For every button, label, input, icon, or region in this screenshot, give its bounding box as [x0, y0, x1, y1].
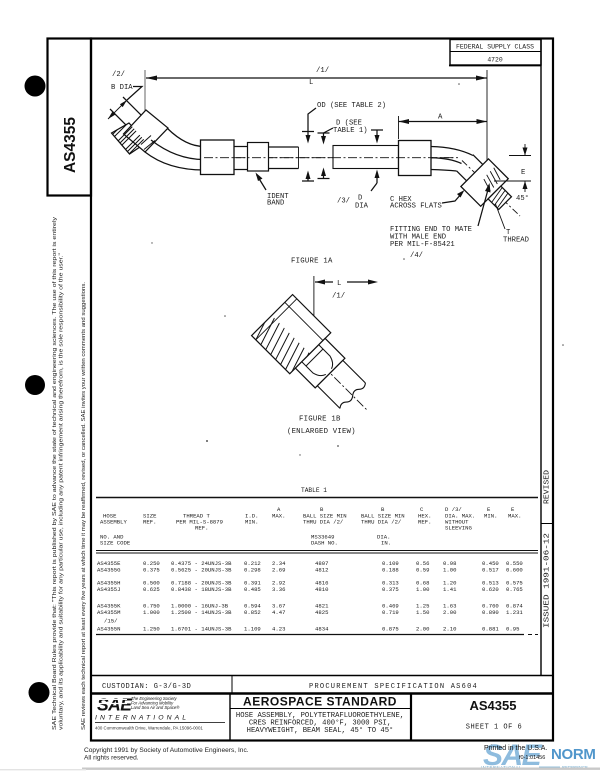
svg-text:FIGURE 1A: FIGURE 1A	[291, 258, 333, 266]
svg-text:THRU DIA /2/: THRU DIA /2/	[303, 519, 344, 526]
svg-text:2.69: 2.69	[272, 567, 285, 574]
svg-text:1.109: 1.109	[244, 626, 261, 633]
svg-text:0.375: 0.375	[382, 586, 399, 593]
svg-text:2.00: 2.00	[443, 609, 457, 616]
svg-text:/2/: /2/	[112, 71, 125, 79]
svg-text:INTERNATIONAL: INTERNATIONAL	[95, 715, 189, 722]
svg-text:AS4355N: AS4355N	[97, 626, 121, 633]
svg-text:REVISED: REVISED	[544, 469, 552, 504]
svg-text:(ENLARGED VIEW): (ENLARGED VIEW)	[287, 428, 356, 436]
svg-text:THRU DIA /2/: THRU DIA /2/	[361, 519, 402, 526]
svg-text:BAND: BAND	[267, 200, 284, 208]
svg-text:REF.: REF.	[143, 519, 156, 526]
svg-text:0.600: 0.600	[506, 567, 523, 574]
svg-text:0.188: 0.188	[382, 567, 399, 574]
svg-text:/15/: /15/	[104, 618, 118, 625]
svg-text:4.23: 4.23	[272, 626, 285, 633]
svg-text:AS4355G: AS4355G	[97, 567, 121, 574]
svg-text:0.881: 0.881	[482, 626, 499, 633]
svg-text:AS4355J: AS4355J	[97, 586, 121, 593]
svg-text:/3/: /3/	[337, 198, 350, 206]
svg-text:ISSUED 1991-06-12: ISSUED 1991-06-12	[544, 533, 552, 628]
svg-text:AS4355: AS4355	[62, 117, 79, 173]
svg-text:ASSEMBLY: ASSEMBLY	[100, 519, 127, 526]
svg-text:0.875: 0.875	[382, 626, 399, 633]
svg-text:THREAD: THREAD	[503, 237, 529, 245]
svg-text:0.8438 - 18UNJS-3B: 0.8438 - 18UNJS-3B	[171, 586, 232, 593]
svg-text:0.59: 0.59	[416, 567, 429, 574]
svg-text:MAX.: MAX.	[272, 513, 285, 520]
svg-text:1.250: 1.250	[143, 626, 160, 633]
svg-text:SAE reviews each technical rep: SAE reviews each technical report at lea…	[81, 282, 87, 730]
svg-text:1.6701 - 14UNJS-3B: 1.6701 - 14UNJS-3B	[171, 626, 232, 633]
svg-text:E: E	[521, 169, 525, 177]
svg-text:TABLE 1: TABLE 1	[301, 487, 327, 494]
svg-text:FIGURE 1B: FIGURE 1B	[299, 416, 341, 424]
svg-text:All rights reserved.: All rights reserved.	[84, 755, 139, 762]
svg-text:1.41: 1.41	[443, 586, 457, 593]
svg-text:D: D	[358, 195, 362, 203]
svg-text:/1/: /1/	[316, 67, 329, 75]
svg-text:A: A	[438, 114, 443, 122]
svg-text:Copyright 1991 by Society of A: Copyright 1991 by Society of Automotive …	[84, 747, 249, 754]
svg-text:HEAVYWEIGHT, BEAM SEAL, 45° TO: HEAVYWEIGHT, BEAM SEAL, 45° TO 45°	[247, 726, 394, 735]
svg-text:TABLE 1): TABLE 1)	[333, 127, 368, 135]
svg-text:2.00: 2.00	[416, 626, 430, 633]
svg-text:FEDERAL SUPPLY CLASS: FEDERAL SUPPLY CLASS	[456, 44, 534, 51]
svg-text:PROCUREMENT SPECIFICATION AS60: PROCUREMENT SPECIFICATION AS604	[309, 683, 478, 691]
svg-text:0.5625 - 20UNJS-3B: 0.5625 - 20UNJS-3B	[171, 567, 232, 574]
svg-text:0.765: 0.765	[506, 586, 523, 593]
svg-text:L: L	[309, 79, 313, 87]
svg-text:1.2500 - 14UNJS-3B: 1.2500 - 14UNJS-3B	[171, 609, 232, 616]
svg-text:0.298: 0.298	[244, 567, 261, 574]
svg-text:AEROSPACE STANDARD: AEROSPACE STANDARD	[243, 695, 397, 709]
svg-text:0.375: 0.375	[143, 567, 160, 574]
svg-text:AS4355M: AS4355M	[97, 609, 121, 616]
svg-text:0.719: 0.719	[382, 609, 399, 616]
svg-text:DIA: DIA	[355, 203, 369, 211]
svg-text:1.231: 1.231	[506, 609, 523, 616]
svg-text:L: L	[337, 280, 341, 288]
svg-text:SLEEVING: SLEEVING	[445, 525, 472, 532]
svg-text:3.36: 3.36	[272, 586, 285, 593]
svg-text:/4/: /4/	[410, 252, 423, 260]
svg-text:REF.: REF.	[195, 525, 208, 532]
svg-text:0.890: 0.890	[482, 609, 499, 616]
svg-text:MIN.: MIN.	[245, 519, 258, 526]
svg-text:4810: 4810	[315, 586, 329, 593]
svg-text:B DIA: B DIA	[111, 84, 133, 92]
svg-text:NORM: NORM	[551, 746, 596, 763]
svg-text:0.95: 0.95	[506, 626, 519, 633]
svg-text:0.852: 0.852	[244, 609, 261, 616]
svg-text:f0-1:01456: f0-1:01456	[519, 755, 545, 761]
svg-text:voluntary, and its applicabili: voluntary, and its applicability and sui…	[59, 253, 65, 730]
svg-text:DASH NO.: DASH NO.	[311, 540, 338, 547]
svg-text:AS4355: AS4355	[470, 698, 517, 713]
svg-text:/1/: /1/	[332, 293, 345, 301]
svg-text:IN.: IN.	[381, 540, 391, 547]
svg-text:4812: 4812	[315, 567, 328, 574]
svg-text:SAE Technical Board Rules prov: SAE Technical Board Rules provide that: …	[52, 217, 58, 730]
svg-text:0.517: 0.517	[482, 567, 499, 574]
svg-text:1.000: 1.000	[143, 609, 160, 616]
svg-text:0.620: 0.620	[482, 586, 499, 593]
svg-text:4720: 4720	[487, 57, 503, 64]
svg-text:MIN.: MIN.	[484, 513, 497, 520]
svg-text:MAX.: MAX.	[508, 513, 521, 520]
svg-text:1.00: 1.00	[416, 586, 430, 593]
svg-text:4825: 4825	[315, 609, 328, 616]
svg-text:1.50: 1.50	[416, 609, 430, 616]
svg-text:SIZE CODE: SIZE CODE	[100, 540, 131, 547]
svg-text:1.00: 1.00	[443, 567, 457, 574]
svg-text:0.485: 0.485	[244, 586, 261, 593]
svg-text:Land Sea Air and Space®: Land Sea Air and Space®	[131, 705, 180, 710]
svg-text:SHEET 1 OF 6: SHEET 1 OF 6	[466, 724, 522, 732]
svg-text:PER MIL-F-85421: PER MIL-F-85421	[390, 241, 455, 249]
svg-text:REF.: REF.	[418, 519, 431, 526]
svg-text:400 Commonwealth Drive, Warren: 400 Commonwealth Drive, Warrendale, PA 1…	[95, 726, 203, 731]
svg-text:4.47: 4.47	[272, 609, 285, 616]
svg-text:SAE: SAE	[97, 695, 133, 715]
svg-text:Printed in the U.S.A.: Printed in the U.S.A.	[484, 745, 547, 752]
svg-text:2.10: 2.10	[443, 626, 457, 633]
svg-text:45°: 45°	[516, 194, 529, 203]
svg-text:OD (SEE TABLE 2): OD (SEE TABLE 2)	[317, 102, 386, 110]
svg-text:4834: 4834	[315, 626, 329, 633]
svg-text:CUSTODIAN: G-3/G-3D: CUSTODIAN: G-3/G-3D	[102, 683, 191, 691]
svg-text:0.625: 0.625	[143, 586, 160, 593]
svg-text:ACROSS FLATS: ACROSS FLATS	[390, 203, 442, 211]
